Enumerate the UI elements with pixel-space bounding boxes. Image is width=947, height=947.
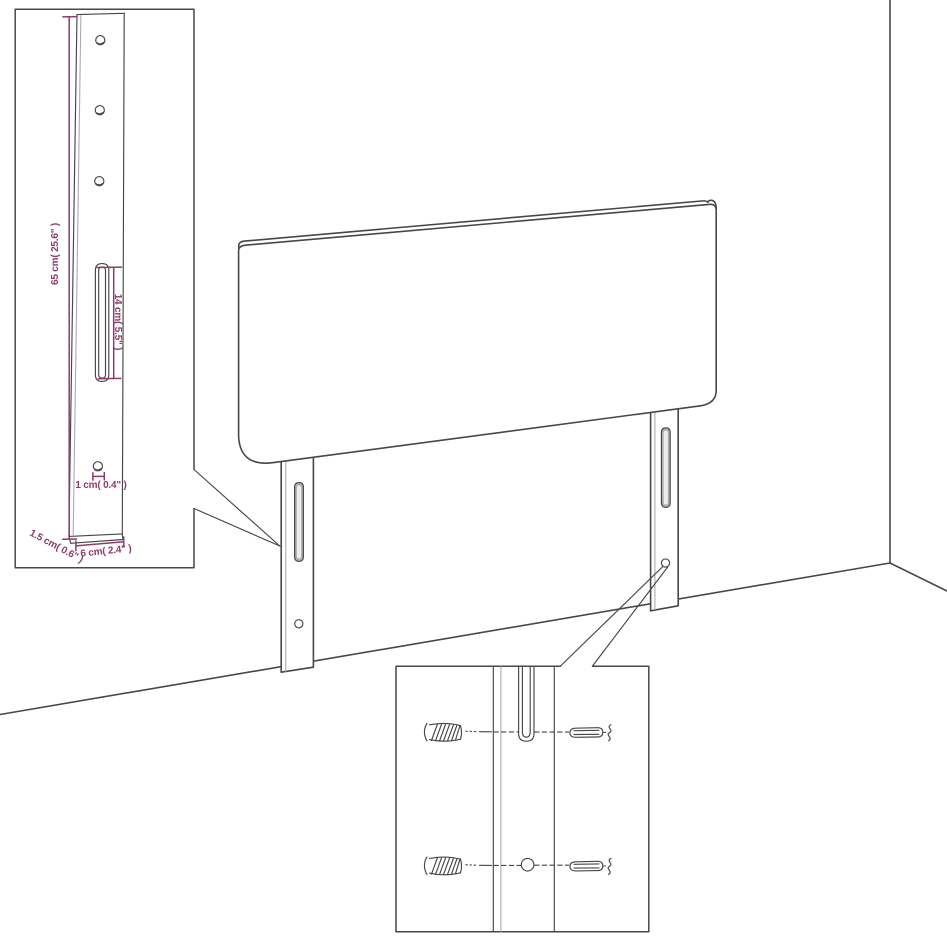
- line-art: [0, 0, 947, 947]
- headboard-panel: [239, 200, 717, 463]
- headboard-left-leg: [281, 447, 313, 673]
- right-leg-hole: [661, 559, 669, 567]
- bracket-slot: [95, 264, 108, 382]
- mounting-inset-box: [396, 666, 649, 932]
- headboard-right-leg: [651, 395, 679, 611]
- callout-lines-bracket-inset: [194, 470, 280, 547]
- product-dimension-diagram: 65 cm( 25.6" ) 14 cm( 5.5" ) 1 cm( 0.4" …: [0, 0, 947, 947]
- left-leg-hole: [295, 620, 303, 628]
- dimension-label-slot-length: 14 cm( 5.5" ): [112, 294, 122, 351]
- dimension-label-hole-diameter: 1 cm( 0.4" ): [75, 481, 126, 491]
- closeup-hole: [521, 858, 534, 871]
- dimension-label-height: 65 cm( 25.6" ): [51, 223, 61, 285]
